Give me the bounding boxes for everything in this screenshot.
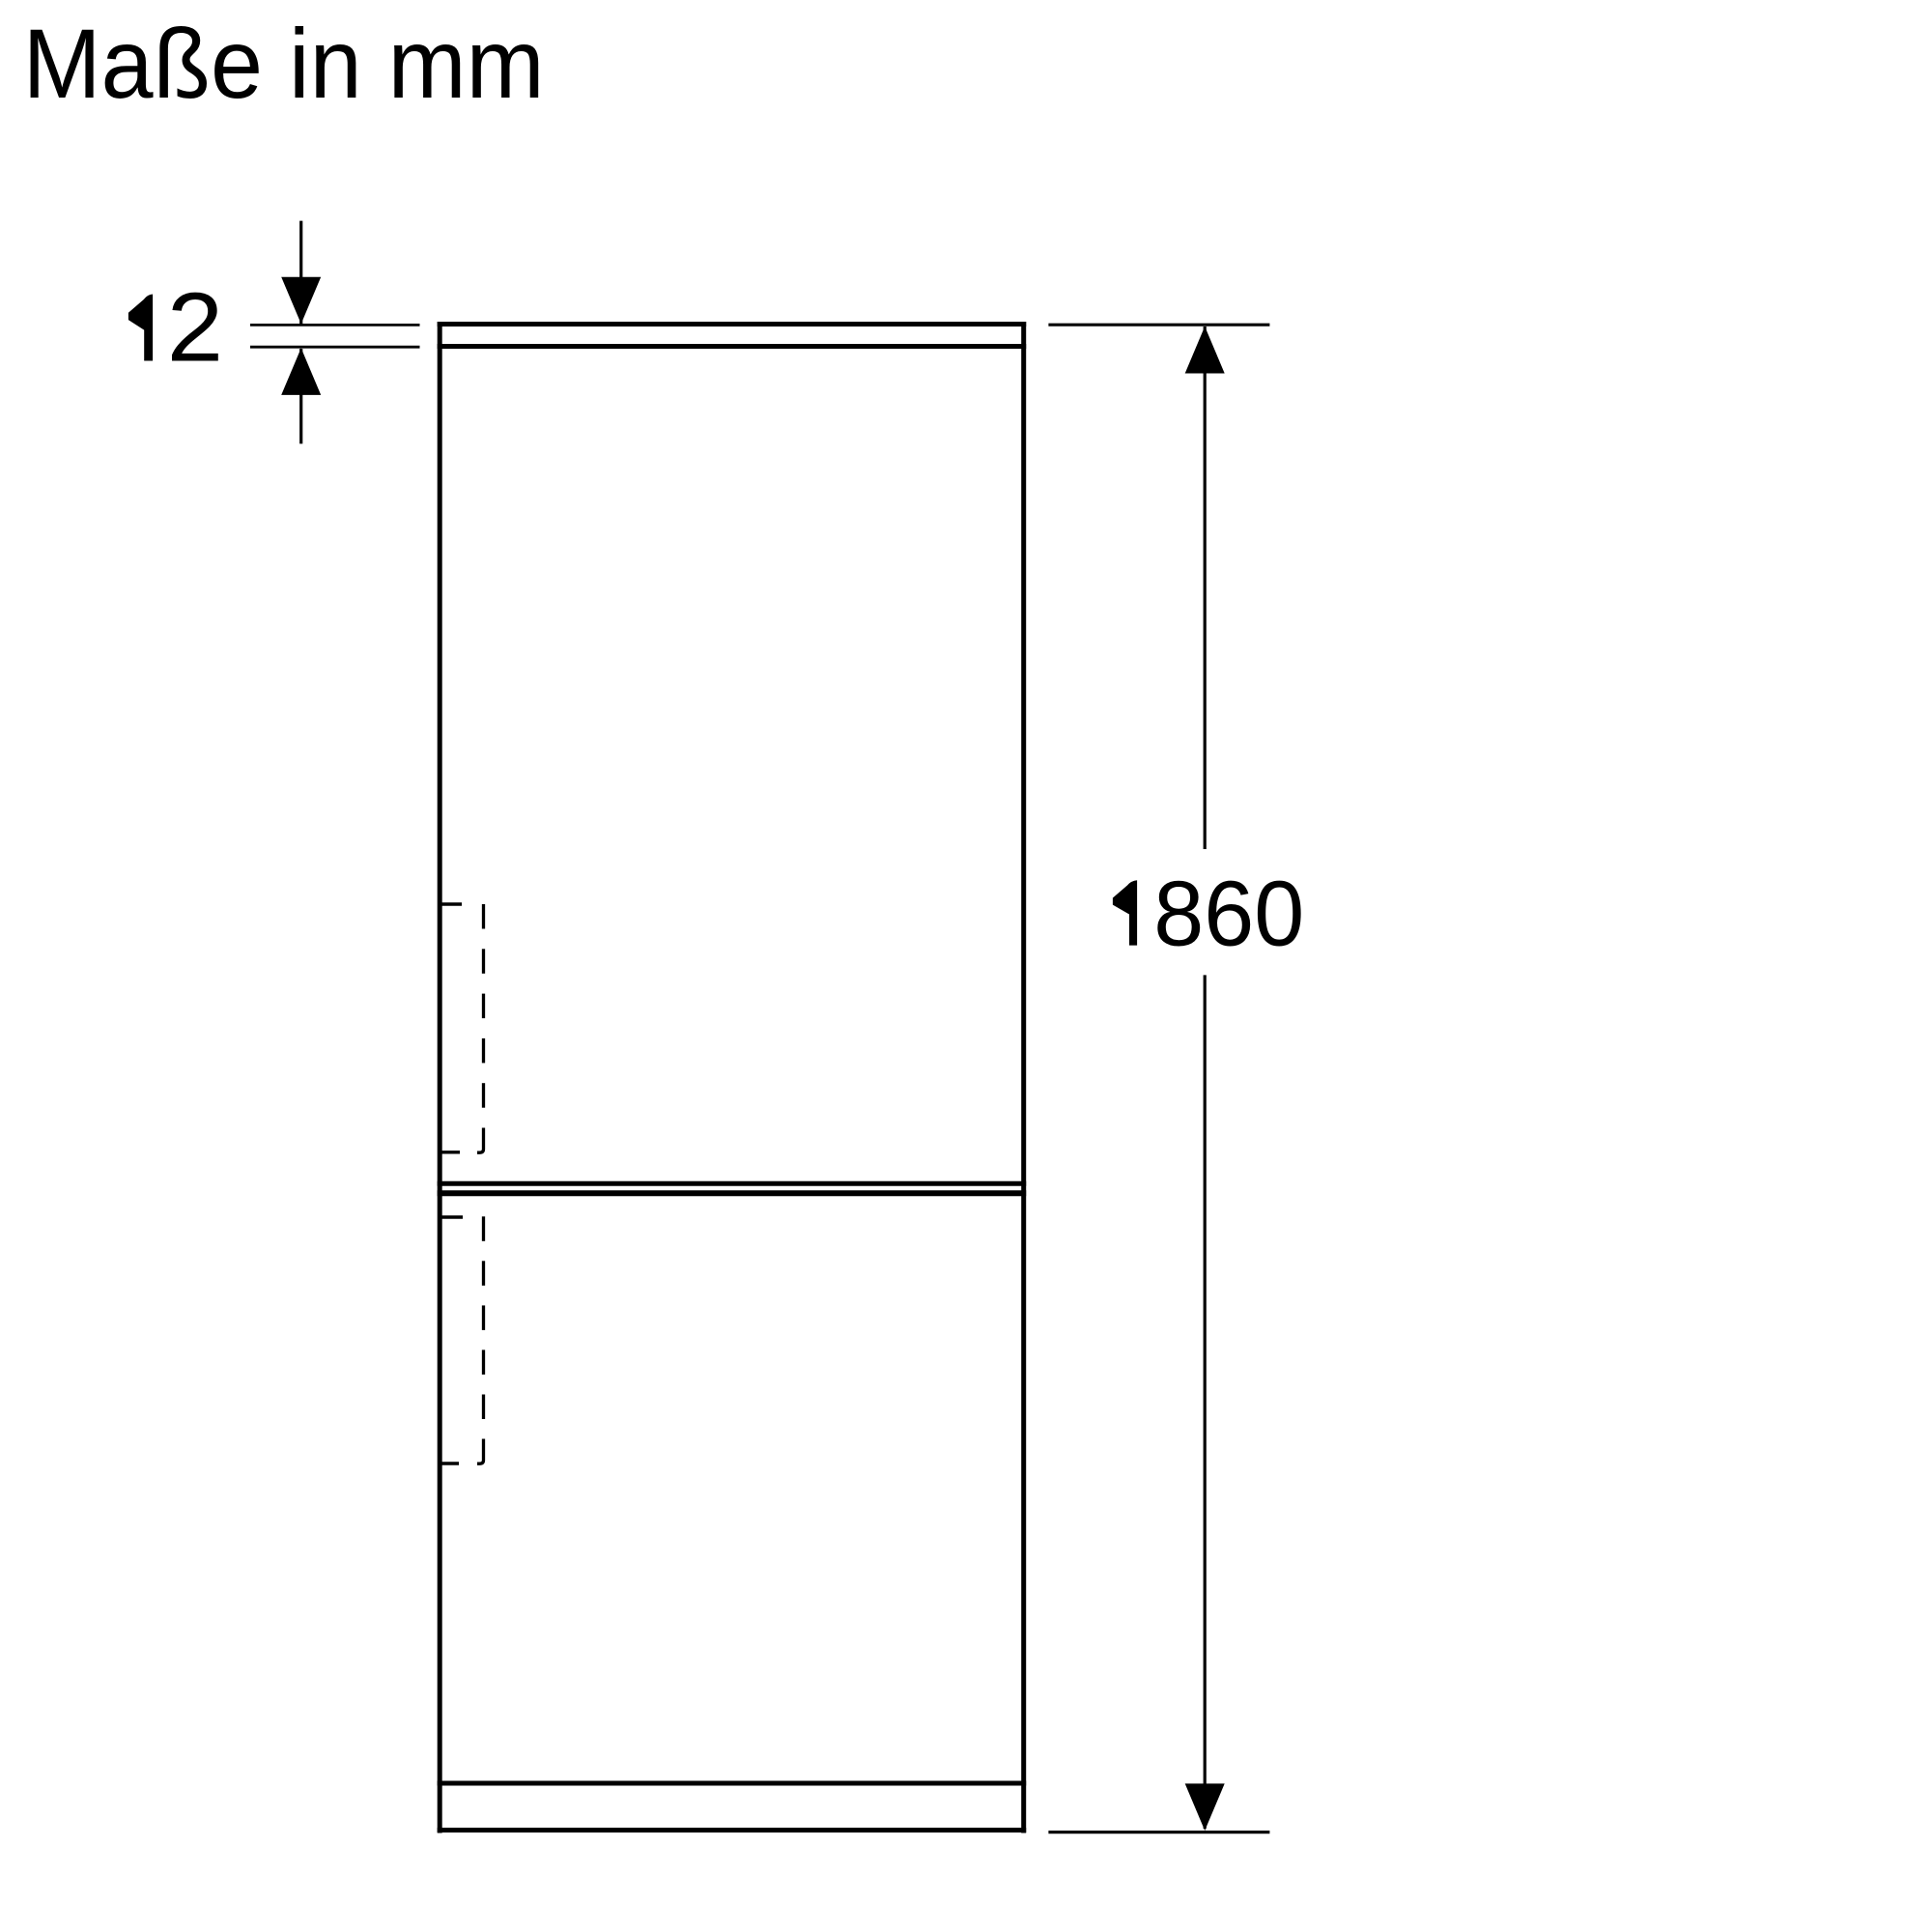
svg-text:Maße in mm: Maße in mm [23,9,545,119]
svg-text:860: 860 [1153,862,1304,965]
svg-text:2: 2 [167,274,223,383]
